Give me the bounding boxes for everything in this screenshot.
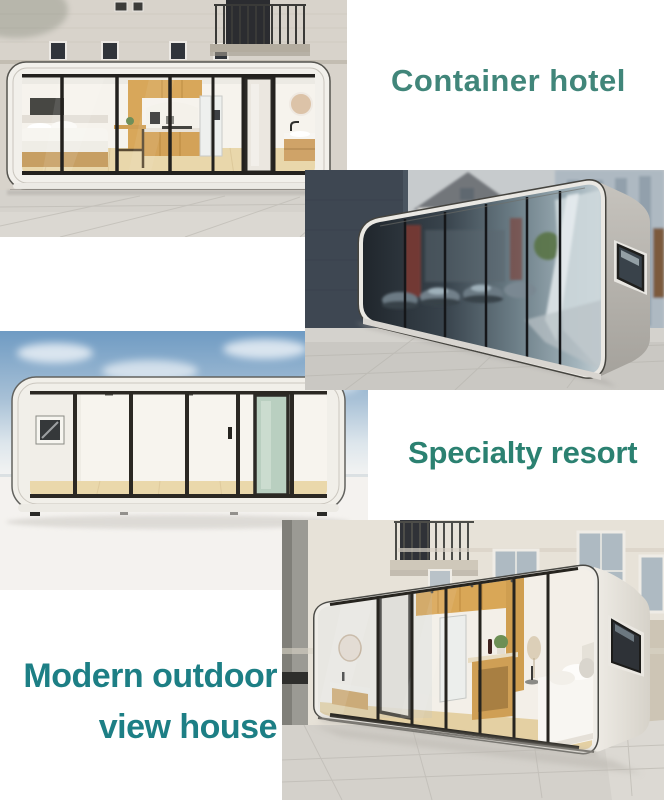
cabin-pod [7,62,330,191]
pavement [0,190,347,237]
photo-mirror-pod-street [305,170,664,390]
caption-specialty-resort: Specialty resort [408,435,637,471]
caption-modern-outdoor-view-house: Modern outdoor view house [0,651,277,753]
caption-modern-outdoor-line1: Modern outdoor [0,651,277,702]
photo-container-hotel-front [0,0,347,237]
empty-pod [6,377,350,529]
photo-container-home-angled [282,520,664,800]
caption-modern-outdoor-line2: view house [0,702,277,753]
balcony [210,0,310,56]
caption-container-hotel: Container hotel [391,63,626,99]
product-collage: Container hotel Specialty resort Modern … [0,0,664,800]
